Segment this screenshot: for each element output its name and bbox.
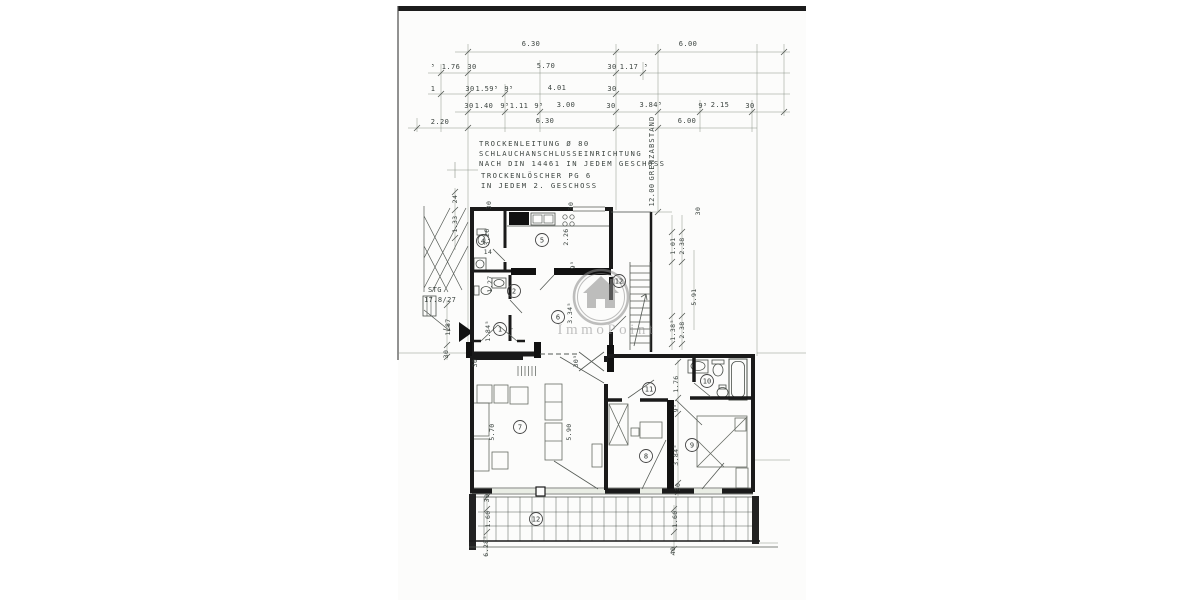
note-line-3: NACH DIN 14461 IN JEDEM GESCHOSS	[479, 159, 665, 168]
room-number: 10	[703, 377, 711, 385]
dimension-label: 9⁵	[504, 85, 513, 93]
dimension-label: 30	[674, 483, 682, 492]
floor-plan-scan: ImmoPoint 6.306.00⁵1.76305.70301.17⁵1301…	[0, 0, 1200, 600]
dimension-label: 5.91	[690, 288, 698, 305]
dimension-label: 1.60	[484, 510, 492, 527]
dimension-label: 1.27	[486, 275, 494, 292]
stove-icon	[509, 212, 529, 225]
dimension-label: 30	[464, 102, 473, 110]
dimension-label: 1.60	[671, 510, 679, 527]
dimension-label: 2.26	[562, 228, 570, 245]
dimension-label: 2.20	[431, 118, 449, 126]
room-number: 4	[481, 237, 485, 245]
dimension-label: 2.38	[678, 237, 686, 254]
dimension-label: 3.34⁵	[566, 302, 574, 324]
terrace-window	[492, 489, 605, 493]
dimension-label: 1.17	[620, 63, 638, 71]
room-number: 6	[556, 313, 560, 321]
room-number: 8	[644, 452, 648, 460]
scan-top-bar	[398, 6, 806, 11]
loadbearing-wall	[511, 268, 536, 275]
dimension-label: 30	[485, 201, 493, 210]
room-number: 12	[532, 515, 540, 523]
dimension-label: 6.00	[679, 40, 697, 48]
room-number: 12	[615, 277, 623, 285]
dimension-label: ⁵	[644, 63, 649, 71]
dimension-label: 5.70	[537, 62, 555, 70]
dimension-label: 9⁵	[672, 404, 680, 413]
dimension-label: 30⁵	[572, 355, 580, 368]
dimension-label: ⁵	[431, 63, 436, 71]
room-number: 2	[512, 287, 516, 295]
dimension-label: 30	[694, 207, 702, 216]
room-number: 9	[690, 441, 694, 449]
dimension-label: 30	[471, 359, 479, 368]
dimension-label: 12.00	[648, 183, 656, 206]
dimension-label: 3.84⁵	[639, 101, 662, 109]
room-number: 11	[645, 385, 653, 393]
floor-plan-drawing: ImmoPoint 6.306.00⁵1.76305.70301.17⁵1301…	[0, 0, 1200, 600]
dimension-label: 24	[451, 195, 459, 204]
dimension-label: 1.84⁵	[484, 320, 492, 342]
dimension-label: 1.76	[672, 375, 680, 392]
dimension-label: 2.15	[711, 101, 729, 109]
dimension-label: 1.33	[451, 215, 459, 232]
dimension-label: 30	[465, 85, 474, 93]
dimension-label: 1.59⁵	[475, 85, 498, 93]
dimension-label: 4.01	[548, 84, 566, 92]
dimension-label: 40	[669, 547, 677, 556]
dimension-label: -	[510, 325, 515, 333]
dimension-label: 30	[606, 102, 615, 110]
dimension-label: GRENZABSTAND	[648, 116, 656, 181]
dimension-label: 6.28⁵	[482, 535, 490, 557]
dimension-label: 9⁵	[500, 102, 509, 110]
dimension-label: 1.01	[669, 237, 677, 254]
dimension-label: 30	[745, 102, 754, 110]
dimension-label: 6.30	[522, 40, 540, 48]
room-number: 7	[518, 423, 522, 431]
room-number: 1	[498, 325, 502, 333]
dimension-label: 30	[607, 85, 616, 93]
dimension-label: 30	[442, 350, 450, 359]
note-line-4: TROCKENLÖSCHER PG 6	[481, 171, 592, 180]
dimension-label: 1.11	[510, 102, 528, 110]
note-line-2: SCHLAUCHANSCHLUSSEINRICHTUNG	[479, 149, 642, 158]
dimension-label: 2.38	[678, 321, 686, 338]
dimension-label: 1.40	[475, 102, 493, 110]
note-line-5: IN JEDEM 2. GESCHOSS	[481, 181, 598, 190]
dimension-label: 1.76	[442, 63, 460, 71]
dimension-label: 3.84⁵	[672, 444, 680, 466]
balcony-wall-right	[752, 496, 759, 544]
note-line-1: TROCKENLEITUNG Ø 80	[479, 139, 590, 148]
door-post	[536, 487, 545, 496]
dimension-label: 30	[467, 63, 476, 71]
dimension-label: 5.70	[488, 423, 496, 440]
stair-spec-value: 17.8/27	[424, 296, 456, 304]
dimension-label: 6.30	[536, 117, 554, 125]
dimension-label: 1.38⁵	[669, 319, 677, 341]
dimension-label: 9⁵	[569, 261, 577, 270]
dimension-label: 9⁵	[534, 102, 543, 110]
dimension-label: 14	[484, 248, 493, 256]
stair-spec-label: STG	[428, 286, 442, 294]
dimension-label: 5.90	[565, 423, 573, 440]
dimension-label: 30	[483, 494, 491, 503]
dimension-label: 3.00	[557, 101, 575, 109]
dimension-label: 9⁵	[698, 102, 707, 110]
dimension-label: 30	[567, 202, 575, 211]
room-number: 5	[540, 236, 544, 244]
dimension-label: 1.87	[444, 318, 452, 335]
dimension-label: 6.00	[678, 117, 696, 125]
dimension-label: 1	[431, 85, 436, 93]
dimension-label: 30	[607, 63, 616, 71]
